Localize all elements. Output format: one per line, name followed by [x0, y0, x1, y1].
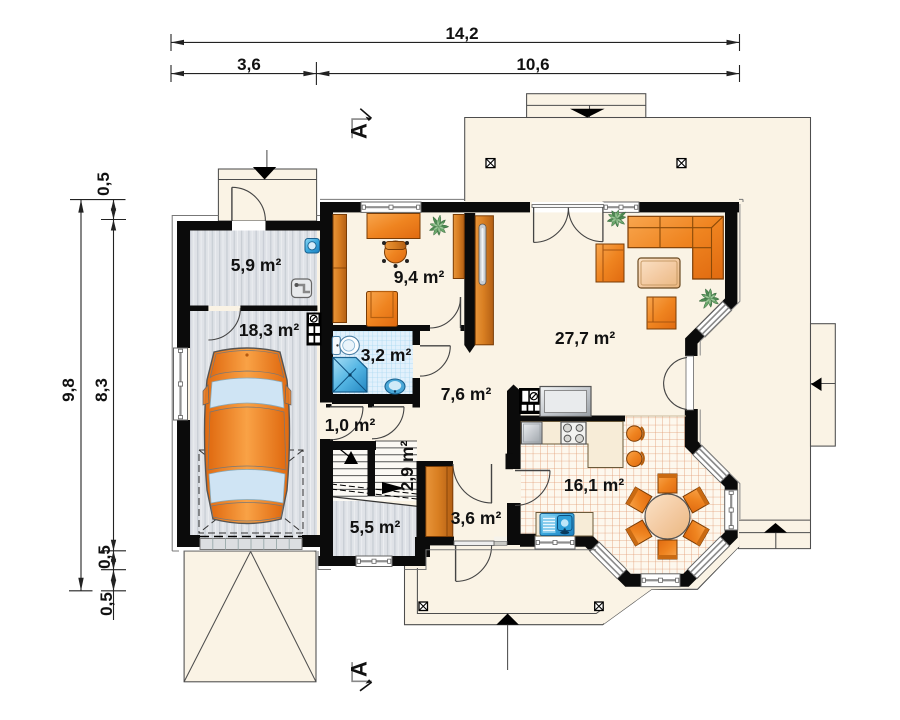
svg-text:7,6 m²: 7,6 m² — [441, 384, 492, 404]
svg-text:1,0 m²: 1,0 m² — [325, 415, 376, 435]
svg-text:0,5: 0,5 — [94, 172, 113, 196]
svg-text:5,9 m²: 5,9 m² — [231, 255, 282, 275]
svg-text:3,6 m²: 3,6 m² — [451, 508, 502, 528]
svg-text:27,7 m²: 27,7 m² — [555, 328, 615, 348]
svg-text:14,2: 14,2 — [445, 24, 478, 43]
svg-text:10,6: 10,6 — [516, 55, 549, 74]
svg-text:9,4 m²: 9,4 m² — [394, 267, 445, 287]
svg-text:8,3: 8,3 — [92, 378, 111, 402]
svg-text:18,3 m²: 18,3 m² — [239, 320, 299, 340]
svg-text:0,5: 0,5 — [97, 592, 116, 616]
svg-text:2,9 m²: 2,9 m² — [397, 441, 417, 492]
svg-text:0,5: 0,5 — [95, 545, 114, 569]
svg-text:A: A — [347, 661, 372, 677]
svg-text:16,1 m²: 16,1 m² — [564, 475, 624, 495]
svg-text:9,8: 9,8 — [59, 378, 78, 402]
svg-text:3,6: 3,6 — [237, 55, 261, 74]
svg-text:5,5 m²: 5,5 m² — [350, 517, 401, 537]
svg-text:3,2 m²: 3,2 m² — [361, 345, 412, 365]
svg-text:A: A — [347, 123, 372, 139]
